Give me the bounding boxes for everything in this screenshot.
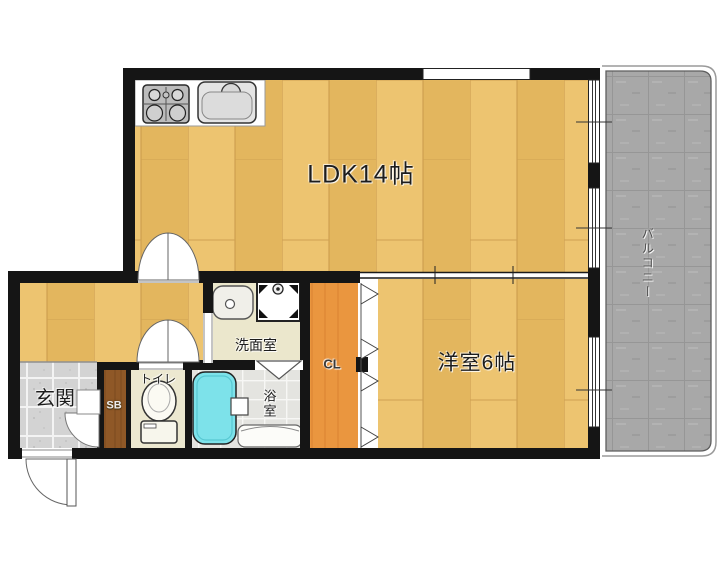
room-label-ldk: LDK14帖 <box>307 163 414 188</box>
room-label-western-room: 洋室6帖 <box>438 353 517 374</box>
washing-machine-icon <box>257 282 300 321</box>
kitchen-sink-icon <box>198 82 256 123</box>
window-right-3 <box>589 337 600 427</box>
balcony-area <box>602 66 716 456</box>
room-label-balcony: バルコニー <box>640 227 653 300</box>
front-door-icon <box>26 459 76 506</box>
window-top <box>423 69 530 80</box>
toilet-icon <box>141 381 177 443</box>
vanity-sink-icon <box>213 286 253 319</box>
room-label-bathroom: 浴室 <box>263 389 276 419</box>
kitchen-counter <box>135 80 265 126</box>
bath-counter <box>238 425 302 447</box>
floor-plan-canvas: LDK14帖 洋室6帖 玄関 トイレ 洗面室 浴室 CL SB バルコニー <box>0 0 720 576</box>
room-label-closet: CL <box>323 358 340 371</box>
room-label-toilet: トイレ <box>140 373 176 385</box>
floor-plan-graphic <box>0 0 720 576</box>
room-label-shoebox: SB <box>106 401 121 412</box>
gas-stove-icon <box>143 85 189 123</box>
room-label-washroom: 洗面室 <box>235 338 277 352</box>
room-label-entrance: 玄関 <box>35 389 75 409</box>
